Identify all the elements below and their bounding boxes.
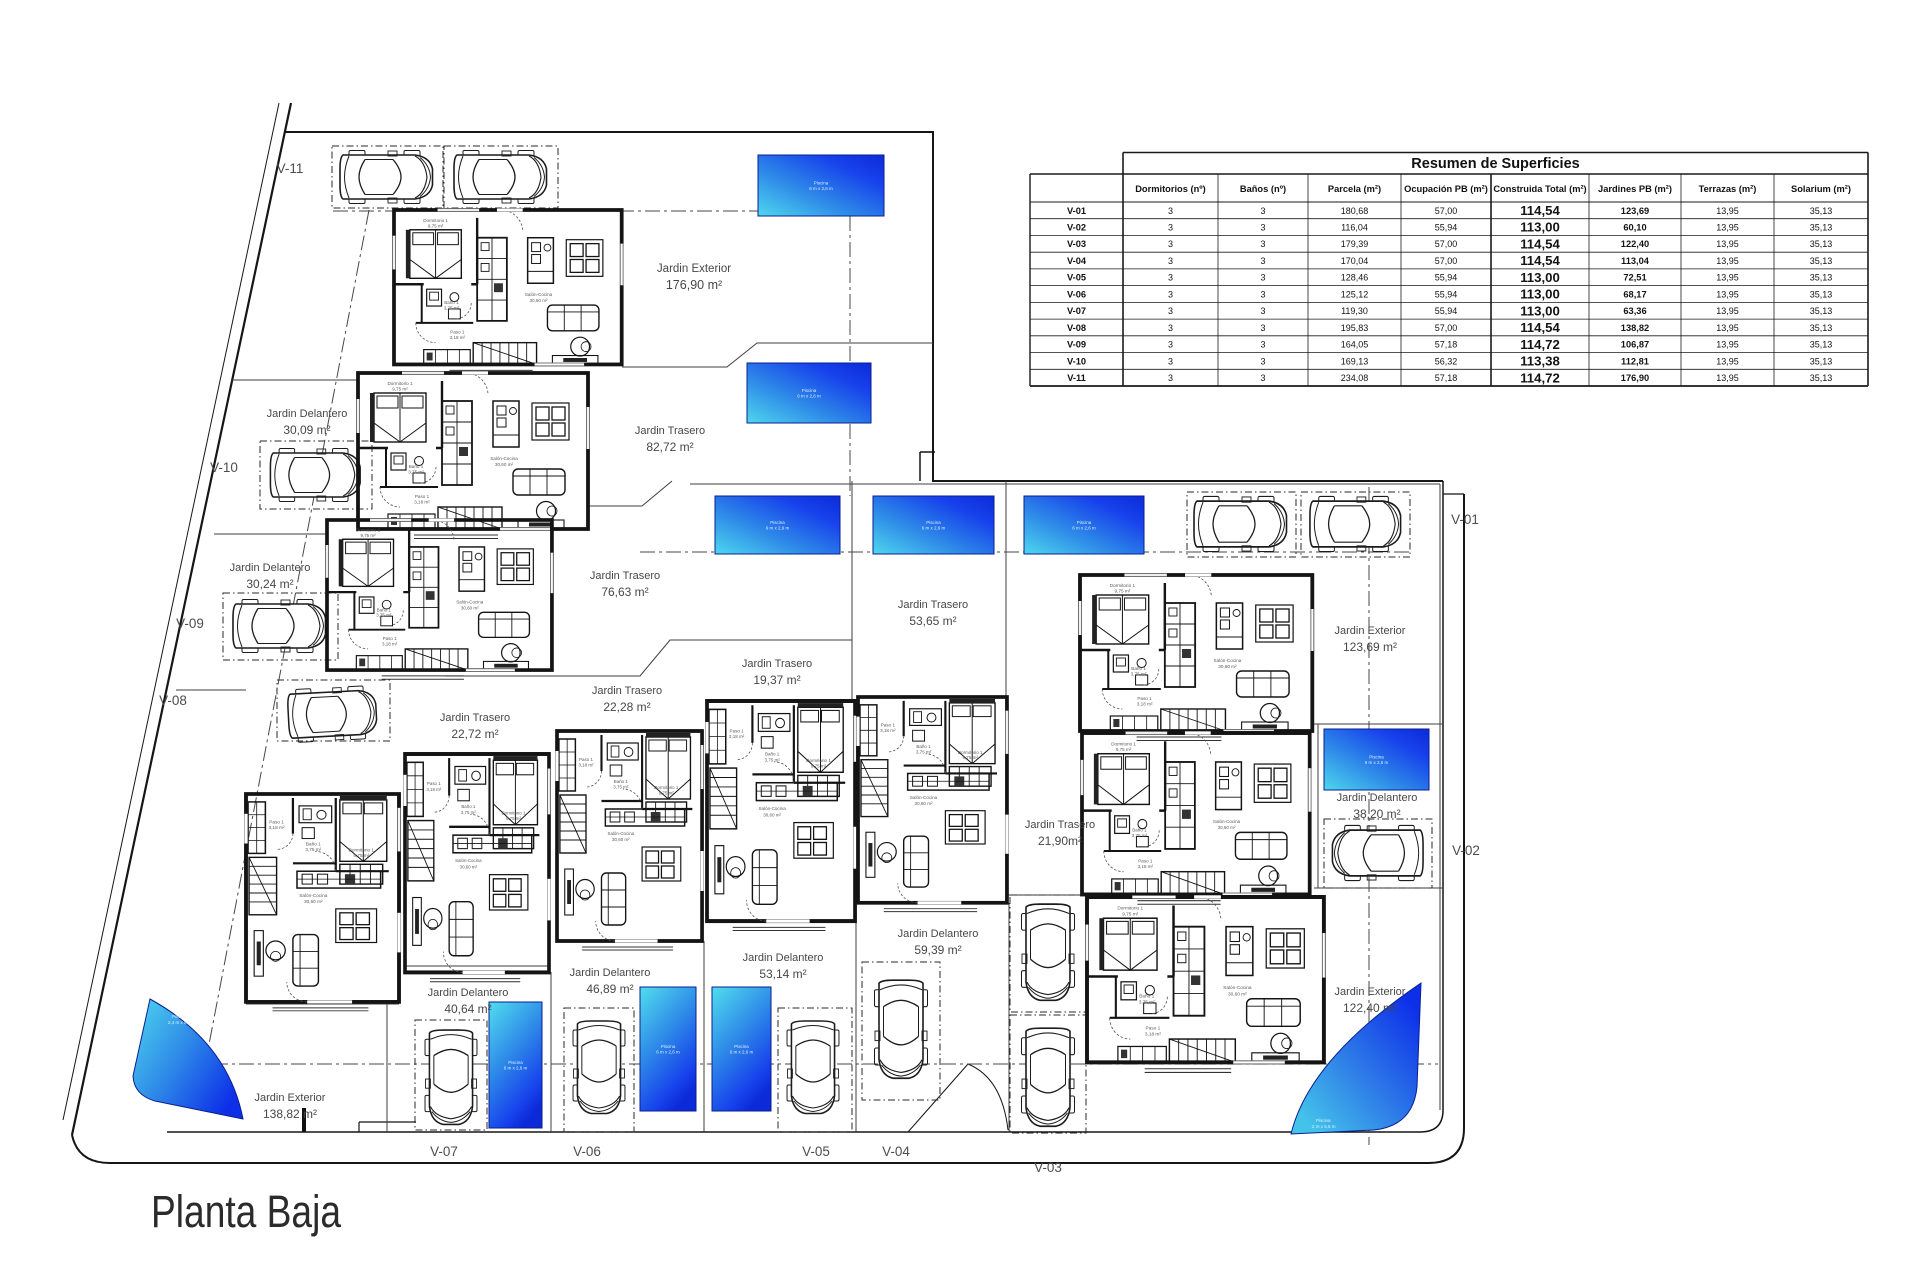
svg-text:112,81: 112,81 [1621,356,1649,366]
svg-text:V-07: V-07 [430,1144,458,1159]
svg-text:3: 3 [1260,256,1265,266]
svg-text:Jardin Delantero: Jardin Delantero [1337,792,1418,804]
svg-text:170,04: 170,04 [1341,256,1369,266]
svg-text:164,05: 164,05 [1341,340,1369,350]
svg-text:234,08: 234,08 [1341,373,1369,383]
svg-text:57,00: 57,00 [1435,323,1458,333]
svg-text:116,04: 116,04 [1341,223,1368,233]
svg-text:Jardin Trasero: Jardin Trasero [592,685,662,697]
svg-text:114,54: 114,54 [1520,203,1560,218]
svg-text:113,00: 113,00 [1520,220,1560,235]
svg-text:35,13: 35,13 [1810,239,1833,249]
svg-text:35,13: 35,13 [1810,373,1833,383]
svg-text:122,40: 122,40 [1621,239,1649,249]
svg-text:13,95: 13,95 [1716,340,1739,350]
svg-text:V-01: V-01 [1451,512,1479,527]
svg-text:72,51: 72,51 [1623,273,1646,283]
svg-text:179,39: 179,39 [1341,239,1369,249]
svg-text:V-06: V-06 [573,1144,601,1159]
svg-text:Piscina: Piscina [661,1044,676,1049]
svg-text:13,95: 13,95 [1716,239,1739,249]
svg-text:V-03: V-03 [1067,239,1086,249]
svg-text:113,38: 113,38 [1520,354,1560,369]
svg-text:2,4 m x 5 m: 2,4 m x 5 m [168,1020,192,1025]
svg-text:V-04: V-04 [882,1144,910,1159]
svg-text:3: 3 [1260,223,1265,233]
svg-text:123,69 m²: 123,69 m² [1343,640,1397,654]
svg-text:Jardin Exterior: Jardin Exterior [1335,986,1406,998]
svg-text:138,82 m²: 138,82 m² [263,1107,317,1121]
svg-text:113,00: 113,00 [1520,287,1560,302]
svg-text:2 m x 5,5 m: 2 m x 5,5 m [1312,1124,1336,1129]
svg-text:V-02: V-02 [1452,843,1480,858]
svg-text:195,83: 195,83 [1341,323,1369,333]
svg-text:35,13: 35,13 [1810,273,1833,283]
svg-text:3: 3 [1168,323,1173,333]
svg-text:V-09: V-09 [176,616,204,631]
svg-text:Baños (nº): Baños (nº) [1240,184,1286,194]
svg-text:82,72 m²: 82,72 m² [646,440,693,454]
svg-text:3: 3 [1260,206,1265,216]
svg-text:6 m x 2,6 m: 6 m x 2,6 m [656,1050,680,1055]
svg-text:Jardin Trasero: Jardin Trasero [1025,819,1095,831]
svg-text:138,82: 138,82 [1621,323,1649,333]
svg-text:V-11: V-11 [1067,373,1086,383]
svg-text:114,54: 114,54 [1520,320,1560,335]
svg-text:30,09 m²: 30,09 m² [283,423,330,437]
svg-text:Jardines PB (m²): Jardines PB (m²) [1598,184,1672,194]
svg-text:Parcela (m²): Parcela (m²) [1328,184,1381,194]
svg-text:Jardin Delantero: Jardin Delantero [898,928,979,940]
svg-text:22,28 m²: 22,28 m² [603,700,650,714]
svg-text:Construida Total (m²): Construida Total (m²) [1493,184,1586,194]
svg-text:35,13: 35,13 [1810,340,1833,350]
svg-text:35,13: 35,13 [1810,289,1833,299]
svg-text:57,00: 57,00 [1435,206,1458,216]
svg-text:35,13: 35,13 [1810,356,1833,366]
svg-text:V-10: V-10 [1067,356,1086,366]
svg-text:V-05: V-05 [802,1144,830,1159]
svg-text:38,20 m²: 38,20 m² [1353,807,1400,821]
svg-text:Jardin Trasero: Jardin Trasero [590,570,660,582]
svg-text:113,00: 113,00 [1520,270,1560,285]
svg-text:3: 3 [1260,239,1265,249]
svg-text:V-05: V-05 [1067,273,1086,283]
svg-text:55,94: 55,94 [1435,289,1458,299]
svg-text:13,95: 13,95 [1716,256,1739,266]
svg-text:Solarium (m²): Solarium (m²) [1791,184,1851,194]
svg-text:Jardin Delantero: Jardin Delantero [428,987,509,999]
svg-text:Jardin Trasero: Jardin Trasero [635,425,705,437]
svg-text:21,90m²: 21,90m² [1038,834,1082,848]
svg-text:Dormitorios (nº): Dormitorios (nº) [1135,184,1206,194]
svg-text:Piscina: Piscina [1316,1118,1331,1123]
svg-text:Piscina: Piscina [508,1060,523,1065]
svg-text:3: 3 [1260,340,1265,350]
svg-text:Jardin Exterior: Jardin Exterior [657,263,731,275]
svg-text:Jardin Delantero: Jardin Delantero [267,408,348,420]
svg-text:3: 3 [1260,323,1265,333]
svg-text:55,94: 55,94 [1435,223,1458,233]
svg-text:113,04: 113,04 [1621,256,1650,266]
svg-text:125,12: 125,12 [1341,289,1369,299]
svg-text:Jardin Delantero: Jardin Delantero [743,952,824,964]
svg-text:V-02: V-02 [1067,223,1086,233]
svg-text:13,95: 13,95 [1716,373,1739,383]
svg-text:13,95: 13,95 [1716,323,1739,333]
svg-text:Piscina: Piscina [814,181,829,186]
svg-text:6 m x 2,6 m: 6 m x 2,6 m [797,394,821,399]
svg-text:3: 3 [1260,273,1265,283]
svg-text:13,95: 13,95 [1716,206,1739,216]
svg-text:V-03: V-03 [1034,1160,1062,1175]
svg-text:46,89 m²: 46,89 m² [586,982,633,996]
svg-text:76,63 m²: 76,63 m² [601,585,648,599]
svg-text:55,94: 55,94 [1435,273,1458,283]
svg-text:V-01: V-01 [1067,206,1086,216]
svg-text:35,13: 35,13 [1810,306,1833,316]
svg-text:57,18: 57,18 [1435,340,1458,350]
svg-text:30,24 m²: 30,24 m² [246,577,293,591]
svg-text:3: 3 [1168,373,1173,383]
svg-text:63,36: 63,36 [1623,306,1646,316]
svg-text:6 m x 2,6 m: 6 m x 2,6 m [809,186,833,191]
svg-text:V-10: V-10 [210,460,238,475]
svg-text:40,64 m²: 40,64 m² [444,1002,491,1016]
svg-text:57,18: 57,18 [1435,373,1458,383]
svg-text:122,40 m²: 122,40 m² [1343,1001,1397,1015]
svg-text:Resumen de Superficies: Resumen de Superficies [1411,156,1579,172]
svg-text:106,87: 106,87 [1621,340,1649,350]
svg-text:114,54: 114,54 [1520,253,1560,268]
svg-text:3: 3 [1260,289,1265,299]
svg-text:119,30: 119,30 [1341,306,1368,316]
svg-text:113,00: 113,00 [1520,303,1560,318]
svg-text:Jardin Delantero: Jardin Delantero [570,967,651,979]
svg-text:Planta Baja: Planta Baja [151,1186,342,1237]
svg-text:53,65 m²: 53,65 m² [909,614,956,628]
svg-text:3: 3 [1260,306,1265,316]
svg-text:Jardin Exterior: Jardin Exterior [255,1092,326,1104]
svg-text:3: 3 [1260,373,1265,383]
svg-text:V-11: V-11 [277,161,304,176]
svg-text:57,00: 57,00 [1435,256,1458,266]
svg-text:68,17: 68,17 [1623,289,1646,299]
svg-text:Jardin Delantero: Jardin Delantero [230,562,311,574]
svg-text:53,14 m²: 53,14 m² [759,967,806,981]
svg-text:3: 3 [1168,289,1173,299]
svg-text:35,13: 35,13 [1810,256,1833,266]
svg-text:114,72: 114,72 [1520,370,1560,385]
svg-text:128,46: 128,46 [1341,273,1369,283]
svg-text:Jardin Trasero: Jardin Trasero [898,599,968,611]
svg-text:V-07: V-07 [1067,306,1086,316]
svg-text:59,39 m²: 59,39 m² [914,943,961,957]
svg-text:Piscina: Piscina [1369,755,1384,760]
svg-text:V-06: V-06 [1067,289,1086,299]
svg-text:V-08: V-08 [1067,323,1086,333]
svg-text:V-04: V-04 [1067,256,1087,266]
svg-text:Jardin Trasero: Jardin Trasero [742,658,812,670]
svg-text:6 m x 2,6 m: 6 m x 2,6 m [730,1050,754,1055]
svg-text:176,90: 176,90 [1621,373,1649,383]
svg-text:3: 3 [1168,223,1173,233]
svg-text:V-08: V-08 [159,693,187,708]
svg-text:6 m x 2,6 m: 6 m x 2,6 m [766,526,790,531]
svg-text:114,72: 114,72 [1520,337,1560,352]
svg-text:Piscina: Piscina [802,388,817,393]
svg-text:3: 3 [1168,356,1173,366]
svg-text:13,95: 13,95 [1716,289,1739,299]
svg-text:Jardin Trasero: Jardin Trasero [440,712,510,724]
svg-text:Piscina: Piscina [770,520,785,525]
svg-text:6 m x 2,6 m: 6 m x 2,6 m [922,526,946,531]
svg-text:6 m x 2,6 m: 6 m x 2,6 m [1365,760,1389,765]
svg-text:114,54: 114,54 [1520,236,1560,251]
svg-text:V-09: V-09 [1067,340,1086,350]
svg-text:180,68: 180,68 [1341,206,1369,216]
svg-text:176,90 m²: 176,90 m² [666,278,722,292]
svg-text:22,72 m²: 22,72 m² [451,727,498,741]
svg-text:13,95: 13,95 [1716,273,1739,283]
svg-text:35,13: 35,13 [1810,223,1833,233]
svg-text:Piscina: Piscina [172,1014,187,1019]
svg-text:Piscina: Piscina [926,520,941,525]
svg-text:57,00: 57,00 [1435,239,1458,249]
svg-text:3: 3 [1168,273,1173,283]
svg-text:3: 3 [1168,239,1173,249]
svg-text:60,10: 60,10 [1623,223,1646,233]
svg-text:3: 3 [1168,206,1173,216]
svg-text:3: 3 [1260,356,1265,366]
svg-text:123,69: 123,69 [1621,206,1649,216]
svg-text:55,94: 55,94 [1435,306,1458,316]
svg-text:35,13: 35,13 [1810,323,1833,333]
svg-text:6 m x 2,6 m: 6 m x 2,6 m [504,1066,528,1071]
svg-text:56,32: 56,32 [1435,356,1458,366]
svg-text:Piscina: Piscina [734,1044,749,1049]
svg-text:35,13: 35,13 [1810,206,1833,216]
svg-text:169,13: 169,13 [1341,356,1369,366]
svg-text:Ocupación PB (m²): Ocupación PB (m²) [1404,184,1488,194]
svg-text:Terrazas (m²): Terrazas (m²) [1699,184,1757,194]
svg-text:Jardin Exterior: Jardin Exterior [1335,625,1406,637]
svg-text:3: 3 [1168,306,1173,316]
svg-text:19,37 m²: 19,37 m² [753,673,800,687]
svg-text:3: 3 [1168,256,1173,266]
svg-text:13,95: 13,95 [1716,223,1739,233]
svg-text:13,95: 13,95 [1716,356,1739,366]
svg-text:3: 3 [1168,340,1173,350]
svg-text:6 m x 2,6 m: 6 m x 2,6 m [1072,526,1096,531]
svg-text:13,95: 13,95 [1716,306,1739,316]
svg-text:Piscina: Piscina [1077,520,1092,525]
